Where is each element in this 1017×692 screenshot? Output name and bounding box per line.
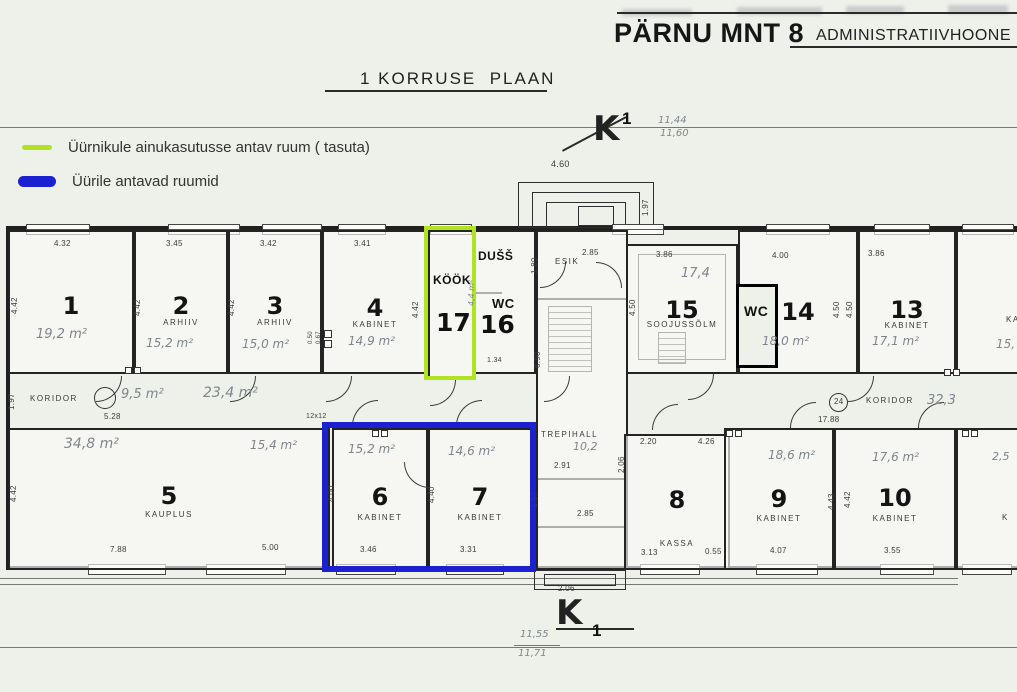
dim: 3.86: [656, 251, 673, 259]
vent-mark: [735, 430, 742, 437]
dim: 3.31: [460, 546, 477, 554]
room-partial-bottom-area: 2,5: [992, 451, 1010, 462]
datum-note: 11,71: [518, 649, 547, 659]
room-number: 8: [626, 488, 728, 512]
room-number: 5: [10, 484, 328, 508]
dim: 3.42: [260, 240, 277, 248]
dim: 2.06: [618, 456, 626, 473]
dim: 4.42: [134, 299, 142, 316]
dim: 4.42: [228, 299, 236, 316]
room-16-area: 4,4 m²: [468, 280, 476, 306]
room-label: ARHIIV: [230, 319, 320, 327]
room-10-area: 17,6 m²: [872, 451, 919, 463]
corridor-24-number: 24: [834, 398, 844, 406]
dim: 0.50: [308, 331, 314, 344]
room-15-area: 17,4: [681, 267, 710, 280]
dim: 4.42: [412, 301, 420, 318]
room-1: 1: [8, 230, 134, 374]
esik-label: ESIK: [555, 258, 579, 266]
vent-mark: [953, 369, 960, 376]
dim: 2.06: [558, 585, 575, 593]
room-3: 3ARHIIV: [228, 230, 322, 374]
room-17-label: KÖÖK: [433, 274, 471, 286]
dim: 4.00: [772, 252, 789, 260]
stair-hall-label: TREPIHALL: [541, 431, 598, 439]
room-2-area: 15,2 m²: [146, 337, 193, 349]
room-label: SOOJUSSÕLM: [628, 321, 736, 329]
room-number: 10: [836, 486, 954, 510]
upper-datum-line: [0, 127, 1017, 128]
dim: 3.41: [354, 240, 371, 248]
corridor-area-right-of-5: 15,4 m²: [250, 439, 297, 451]
room-7-area: 14,6 m²: [448, 445, 495, 457]
rear-porch-inner: [544, 574, 616, 586]
door-arc: [326, 376, 352, 402]
dim: 4.42: [10, 485, 18, 502]
pavement-line: [0, 584, 958, 585]
fraction-line: [514, 645, 560, 646]
room-label: KABINET: [836, 515, 954, 523]
vent-mark: [324, 340, 332, 348]
door-arc: [652, 404, 678, 430]
vent-mark: [971, 430, 978, 437]
section-mark-top: K: [593, 112, 619, 146]
section-mark-top-index: 1: [622, 110, 632, 127]
dim: 5.28: [104, 413, 121, 421]
plan-canvas: 12ARHIIV3ARHIIV4KABINET15SOOJUSSÕLM1413K…: [0, 0, 1017, 692]
door-arc: [430, 380, 456, 406]
corridor-area-left: 9,5 m²: [121, 388, 164, 401]
datum-note: 11,55: [520, 630, 549, 640]
column-note: 12x12: [306, 413, 327, 420]
pavement-line: [0, 578, 958, 579]
room-17-number: 17: [436, 310, 471, 335]
room-number: 13: [860, 298, 954, 322]
vent-mark: [726, 430, 733, 437]
corridor-area-mid: 23,4 m²: [203, 386, 258, 400]
corridor-label-right: KORIDOR: [866, 397, 914, 405]
datum-note: 11,60: [660, 129, 689, 139]
room-number: 9: [726, 487, 832, 511]
ground-line: [0, 647, 1017, 648]
dim: 4.60: [551, 160, 570, 169]
dim: 17.88: [818, 416, 840, 424]
dim: 1.97: [642, 199, 650, 216]
door-arc: [688, 374, 714, 400]
dim: 0.55: [705, 548, 722, 556]
room-label: KABINET: [726, 515, 832, 523]
dim: 3.45: [166, 240, 183, 248]
door-arc: [96, 376, 122, 402]
dim: 6.90: [534, 351, 542, 368]
room-3-area: 15,0 m²: [242, 338, 289, 350]
room-number: 2: [136, 294, 226, 318]
room-6-area: 15,2 m²: [348, 443, 395, 455]
dim: 4.42: [11, 297, 19, 314]
dim: 1.80: [531, 257, 539, 274]
floor-plan-scan: PÄRNU MNT 8 ADMINISTRATIIVHOONE 1 KORRUS…: [0, 0, 1017, 692]
room-label: KABINET: [324, 321, 426, 329]
wc-bold-outline: [736, 284, 778, 368]
room-4-area: 14,9 m²: [348, 335, 395, 347]
vent-mark: [324, 330, 332, 338]
vent-mark: [125, 367, 132, 374]
wc-room-label: WC: [744, 304, 768, 318]
door-arc: [790, 402, 816, 428]
dim: 4.43: [828, 493, 836, 510]
room-16-label: WC: [492, 297, 515, 310]
dim: 1.34: [487, 357, 502, 364]
vent-mark: [962, 430, 969, 437]
stair-hall-area: 10,2: [573, 441, 598, 452]
room-2: 2ARHIIV: [134, 230, 228, 374]
vent-mark: [944, 369, 951, 376]
plan-title-underline: [325, 90, 547, 92]
room-13-area: 17,1 m²: [872, 335, 919, 347]
dim: 3.46: [360, 546, 377, 554]
dim: 2.85: [577, 510, 594, 518]
dim: 4.42: [844, 491, 852, 508]
section-mark-bottom: K: [556, 596, 582, 630]
room-1-area: 19,2 m²: [36, 328, 87, 341]
dim: 4.50: [846, 301, 854, 318]
dim: 1.97: [8, 393, 16, 410]
dim: 4.32: [54, 240, 71, 248]
dim: 2.85: [582, 249, 599, 257]
dim: 0.67: [316, 331, 322, 344]
room-label: KABINET: [860, 322, 954, 330]
dim: 2.20: [640, 438, 657, 446]
room-14-area: 18,0 m²: [762, 335, 809, 347]
header-rule: [617, 12, 1017, 14]
dim: 4.26: [698, 438, 715, 446]
dim: 3.86: [868, 250, 885, 258]
room-9-area: 18,6 m²: [768, 449, 815, 461]
dim: 4.07: [770, 547, 787, 555]
room-partial-area: 15,: [996, 338, 1015, 350]
dim: 4.40: [428, 486, 436, 503]
room-label: ARHIIV: [136, 319, 226, 327]
room-number: 15: [628, 298, 736, 322]
dim: 5.00: [262, 544, 279, 552]
corridor-label-left: KORIDOR: [30, 395, 78, 403]
section-mark-bottom-index: 1: [592, 622, 602, 639]
dim: 3.55: [884, 547, 901, 555]
vent-mark: [134, 367, 141, 374]
room-number: 1: [10, 294, 132, 318]
dim: 2.91: [554, 462, 571, 470]
room-partial-label: KA: [1006, 316, 1017, 324]
dim: 4.50: [833, 301, 841, 318]
room-partial-top-right: [956, 230, 1017, 374]
room-15: 15SOOJUSSÕLM: [626, 244, 738, 374]
room-16-shower-label: DUŠŠ: [478, 250, 513, 262]
room-partial-bottom-label: K: [1002, 514, 1009, 522]
dim: 3.13: [641, 549, 658, 557]
entrance-steps: [578, 206, 614, 226]
room-16-number: 16: [480, 312, 515, 337]
dim: 4.00: [328, 485, 336, 502]
corridor-area-right: 32,3: [927, 394, 956, 407]
room-5-area: 34,8 m²: [64, 437, 119, 451]
dim: 4.50: [629, 299, 637, 316]
room-number: 3: [230, 294, 320, 318]
dim: 7.88: [110, 546, 127, 554]
room-label: KAUPLUS: [10, 511, 328, 519]
datum-note: 11,44: [658, 116, 687, 126]
dim: 1.57: [531, 491, 539, 508]
subtitle-underline: [790, 46, 1017, 48]
